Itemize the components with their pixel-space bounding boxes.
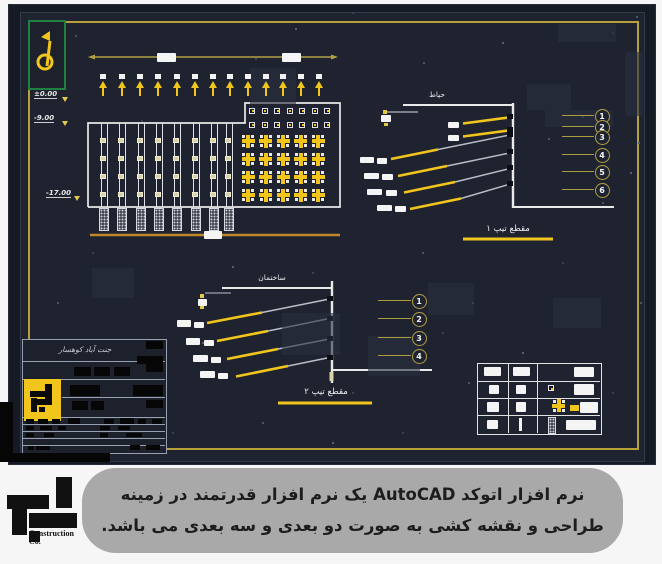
column-marker [210, 174, 216, 179]
anchor-cross-symbol [312, 171, 325, 184]
redacted-cell [40, 426, 52, 430]
small-anchor-symbol [262, 122, 268, 128]
callout-leader [562, 154, 594, 155]
pile [154, 208, 164, 231]
redacted-cell [0, 453, 110, 462]
up-arrow-icon [300, 87, 302, 96]
column-marker [100, 192, 106, 197]
column-marker [155, 156, 161, 161]
redacted-cell [68, 418, 80, 424]
cad-drawing: حیاط مقطع تیپ ۱ ساختمان مقطع تیپ ۲ جنت آ… [0, 0, 662, 564]
redacted-cell [26, 419, 34, 424]
small-anchor-symbol [299, 108, 305, 114]
elevation-label: -17.00 [46, 189, 71, 198]
callout-leader [562, 171, 594, 172]
level-marker-icon [74, 196, 80, 201]
pile [117, 208, 127, 231]
callout-section1-6: 6 [595, 183, 610, 198]
anchor-plate [245, 74, 251, 79]
soil-nail [463, 130, 512, 137]
up-arrow-icon [212, 87, 214, 96]
column-marker [155, 138, 161, 143]
column-marker [173, 156, 179, 161]
redacted-cell [120, 418, 134, 424]
north-arrow-icon [33, 29, 59, 79]
anchor-plate [137, 74, 143, 79]
section2-label: مقطع تیپ ۲ [280, 387, 372, 397]
column-marker [118, 174, 124, 179]
pile [191, 208, 201, 231]
column-marker [210, 156, 216, 161]
callout-leader [562, 189, 594, 190]
small-anchor-symbol [324, 108, 330, 114]
redacted-cell [91, 401, 104, 410]
page: حیاط مقطع تیپ ۱ ساختمان مقطع تیپ ۲ جنت آ… [0, 0, 662, 564]
small-anchor-symbol [249, 122, 255, 128]
redacted-cell [52, 419, 60, 424]
column-marker [192, 156, 198, 161]
small-anchor-symbol [262, 108, 268, 114]
titleblock-logo [24, 379, 61, 421]
callout-section1-5: 5 [595, 165, 610, 180]
masked-text [204, 340, 214, 346]
legend-yellow-mark [570, 405, 579, 411]
anchor-cross-symbol [242, 153, 255, 166]
pile [209, 208, 219, 231]
redacted-cell [94, 367, 110, 376]
pile [172, 208, 182, 231]
small-anchor-symbol [324, 122, 330, 128]
faint-rect [625, 52, 643, 116]
masked-text [448, 122, 459, 128]
column-marker [192, 138, 198, 143]
anchor-cross-symbol [312, 135, 325, 148]
redacted-cell [26, 433, 34, 437]
column-marker [155, 192, 161, 197]
company-name: Istasazeh Construction Co. [29, 521, 74, 547]
redacted-cell [58, 426, 66, 430]
anchor-cross-symbol [277, 171, 290, 184]
column-marker [100, 156, 106, 161]
callout-section1-4: 4 [595, 148, 610, 163]
legend-anchor-symbol [548, 385, 554, 391]
up-arrow-icon [176, 87, 178, 96]
up-arrow-icon [157, 87, 159, 96]
anchor-cross-symbol [259, 135, 272, 148]
small-anchor-symbol [312, 122, 318, 128]
up-arrow-icon [247, 87, 249, 96]
faint-rect [428, 283, 474, 315]
soil-nail [410, 199, 461, 210]
caption-line1: نرم افزار اتوکد AutoCAD یک نرم افزار قدر… [92, 479, 613, 510]
column-marker [225, 138, 231, 143]
soil-nail [217, 331, 268, 341]
anchor-cross-symbol [294, 153, 307, 166]
stamp-box [28, 20, 66, 90]
redacted-cell [26, 426, 34, 430]
masked-text [360, 157, 374, 164]
anchor-cross-symbol [259, 189, 272, 202]
callout-section1-3: 3 [595, 130, 610, 145]
callout-leader [378, 300, 411, 301]
up-arrow-icon [318, 87, 320, 96]
anchor-cross-symbol [259, 153, 272, 166]
column-marker [137, 192, 143, 197]
column-marker [225, 192, 231, 197]
column-marker [137, 174, 143, 179]
anchor-plate [316, 74, 322, 79]
column-marker [155, 174, 161, 179]
pile [224, 208, 234, 231]
masked-text [377, 205, 392, 212]
column-marker [137, 138, 143, 143]
column-marker [225, 156, 231, 161]
masked-text [382, 174, 393, 180]
pile [136, 208, 146, 231]
masked-text [198, 299, 207, 306]
caption-line2: طراحی و نقشه کشی به صورت دو بعدی و سه بع… [92, 510, 613, 541]
column-marker [192, 174, 198, 179]
masked-text [487, 402, 499, 412]
callout-leader [562, 115, 594, 116]
callout-leader [378, 337, 411, 338]
faint-rect [553, 298, 601, 328]
legend-cross-symbol [552, 399, 565, 412]
faint-rect [527, 84, 571, 110]
masked-text [513, 367, 530, 376]
soil-nail [227, 349, 278, 359]
callout-section2-4: 4 [412, 349, 427, 364]
up-arrow-icon [139, 87, 141, 96]
redacted-cell [100, 426, 110, 430]
column-marker [118, 156, 124, 161]
anchor-cross-symbol [277, 153, 290, 166]
soil-nail [207, 313, 262, 324]
soil-nail [236, 366, 288, 377]
anchor-cross-symbol [294, 189, 307, 202]
redacted-cell [130, 445, 140, 450]
redacted-cell [114, 367, 130, 376]
masked-text [448, 135, 459, 141]
small-anchor-symbol [274, 108, 280, 114]
anchor-cross-symbol [312, 153, 325, 166]
masked-text [194, 322, 204, 328]
column-marker [225, 174, 231, 179]
masked-text [395, 206, 406, 212]
redacted-cell [146, 362, 163, 372]
faint-rect [558, 24, 616, 42]
faint-rect [250, 68, 296, 104]
legend-bar-symbol [519, 418, 522, 431]
masked-text [218, 373, 228, 379]
anchor-plate [119, 74, 125, 79]
masked-text [489, 385, 499, 394]
faint-rect [282, 313, 340, 355]
masked-text [367, 189, 382, 196]
redacted-cell [138, 419, 146, 424]
masked-text [204, 231, 222, 239]
small-anchor-symbol [299, 122, 305, 128]
column-marker [100, 174, 106, 179]
anchor-plate [210, 74, 216, 79]
anchor-plate [280, 74, 286, 79]
masked-text [574, 384, 594, 395]
small-anchor-symbol [274, 122, 280, 128]
column-marker [100, 138, 106, 143]
masked-text [580, 402, 598, 413]
redacted-cell [104, 419, 114, 424]
masked-text [193, 355, 208, 362]
column-marker [173, 174, 179, 179]
masked-text [516, 402, 526, 412]
redacted-cell [36, 446, 50, 450]
small-anchor-symbol [249, 108, 255, 114]
redacted-cell [28, 446, 34, 450]
anchor-cross-symbol [242, 171, 255, 184]
masked-text [177, 320, 191, 327]
column-marker [210, 192, 216, 197]
masked-text [364, 173, 379, 180]
anchor-plate [155, 74, 161, 79]
column-marker [192, 192, 198, 197]
callout-section2-3: 3 [412, 331, 427, 346]
up-arrow-icon [121, 87, 123, 96]
caption-text: نرم افزار اتوکد AutoCAD یک نرم افزار قدر… [92, 479, 613, 541]
masked-text [282, 53, 301, 62]
anchor-plate [192, 74, 198, 79]
redacted-cell [146, 400, 163, 408]
anchor-cross-symbol [242, 189, 255, 202]
callout-leader [378, 318, 411, 319]
up-arrow-icon [265, 87, 267, 96]
masked-text [157, 53, 176, 62]
section1-label: مقطع تیپ ۱ [462, 224, 554, 234]
redacted-cell [70, 385, 100, 396]
masked-text [377, 158, 387, 164]
masked-text [487, 420, 498, 429]
up-arrow-icon [102, 87, 104, 96]
column-marker [210, 138, 216, 143]
redacted-cell [38, 419, 48, 424]
faint-rect [92, 268, 134, 298]
up-arrow-icon [194, 87, 196, 96]
redacted-cell [152, 419, 162, 424]
anchor-cross-symbol [294, 135, 307, 148]
masked-text [186, 338, 200, 345]
level-marker-icon [62, 121, 68, 126]
masked-text [484, 367, 501, 376]
redacted-cell [133, 385, 163, 396]
anchor-cross-symbol [259, 171, 272, 184]
level-marker-icon [62, 97, 68, 102]
small-anchor-symbol [312, 108, 318, 114]
column-marker [173, 138, 179, 143]
callout-leader [562, 126, 594, 127]
callout-section2-2: 2 [412, 312, 427, 327]
anchor-plate [174, 74, 180, 79]
redacted-cell [44, 433, 54, 437]
anchor-plate [100, 74, 106, 79]
redacted-cell [72, 401, 88, 410]
redacted-cell [118, 426, 130, 430]
anchor-cross-symbol [312, 189, 325, 202]
titleblock-header: جنت آباد کوهسار [30, 345, 140, 354]
anchor-cross-symbol [277, 135, 290, 148]
callout-leader [378, 355, 411, 356]
masked-text [200, 371, 215, 378]
redacted-cell [126, 433, 142, 437]
masked-text [574, 367, 594, 377]
column-marker [137, 156, 143, 161]
anchor-cross-symbol [277, 189, 290, 202]
redacted-cell [74, 367, 91, 376]
up-arrow-icon [282, 87, 284, 96]
soil-nail [463, 117, 512, 124]
company-logo [0, 470, 100, 560]
pile [99, 208, 109, 231]
callout-section2-1: 1 [412, 294, 427, 309]
redacted-cell [146, 445, 160, 450]
masked-text [381, 115, 391, 122]
soil-nail [398, 166, 447, 176]
anchor-plate [298, 74, 304, 79]
masked-text [211, 357, 221, 363]
soil-nail [404, 182, 455, 193]
anchor-plate [263, 74, 269, 79]
masked-text [516, 385, 526, 394]
callout-leader [562, 136, 594, 137]
up-arrow-icon [229, 87, 231, 96]
small-anchor-symbol [287, 108, 293, 114]
section1-title: حیاط [413, 90, 461, 99]
elevation-label: ±0.00 [34, 90, 57, 99]
legend-pile-symbol [548, 417, 556, 434]
column-marker [118, 138, 124, 143]
redacted-cell [146, 341, 163, 349]
section2-title: ساختمان [240, 273, 304, 282]
anchor-plate [227, 74, 233, 79]
anchor-cross-symbol [294, 171, 307, 184]
column-marker [118, 192, 124, 197]
soil-nail [391, 150, 438, 160]
redacted-cell [100, 433, 108, 437]
masked-text [386, 190, 397, 196]
anchor-cross-symbol [242, 135, 255, 148]
masked-text [566, 420, 596, 430]
elevation-label: -9.00 [34, 114, 54, 123]
column-marker [173, 192, 179, 197]
small-anchor-symbol [287, 122, 293, 128]
